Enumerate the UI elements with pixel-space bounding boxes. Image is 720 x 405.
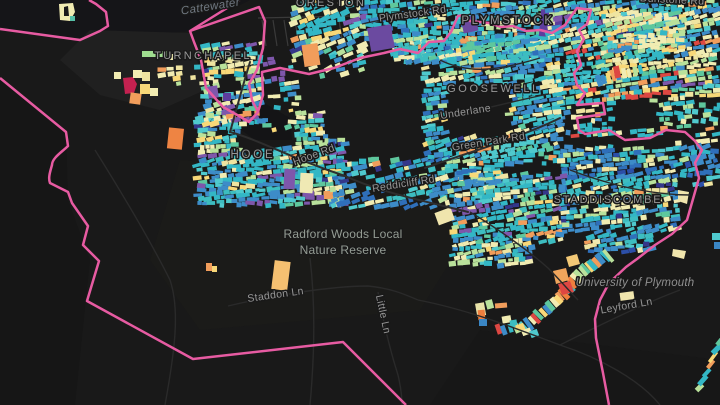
- svg-text:GOOSEWELL: GOOSEWELL: [447, 83, 541, 95]
- svg-text:STADDISCOMBE: STADDISCOMBE: [554, 194, 663, 206]
- svg-text:Radford Woods Local: Radford Woods Local: [284, 227, 403, 241]
- svg-text:Nature Reserve: Nature Reserve: [300, 243, 387, 257]
- svg-text:University of Plymouth: University of Plymouth: [576, 277, 695, 289]
- svg-text:PLYMSTOCK: PLYMSTOCK: [461, 15, 554, 27]
- svg-text:TURNCHAPEL: TURNCHAPEL: [154, 50, 252, 62]
- svg-text:ORESTON: ORESTON: [296, 0, 366, 9]
- svg-text:HOOE: HOOE: [230, 149, 275, 161]
